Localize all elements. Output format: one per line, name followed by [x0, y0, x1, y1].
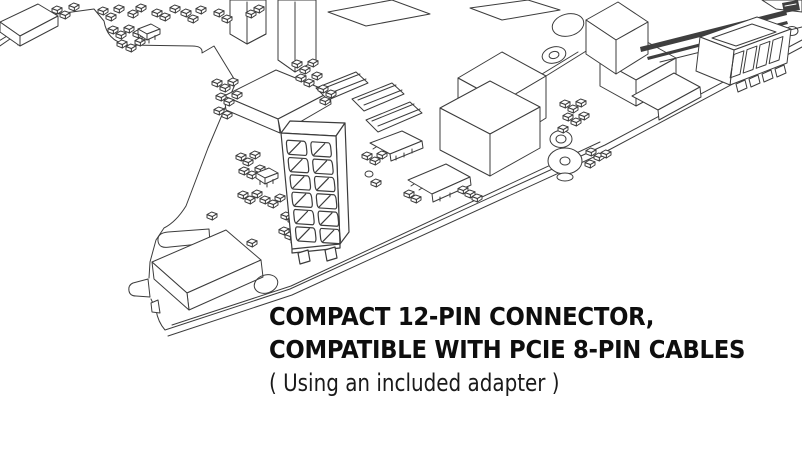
- caption-heading-line2: COMPATIBLE WITH PCIE 8-PIN CABLES: [269, 333, 745, 366]
- caption-heading-line1: COMPACT 12-PIN CONNECTOR,: [269, 300, 745, 333]
- caption-block: COMPACT 12-PIN CONNECTOR, COMPATIBLE WIT…: [269, 300, 792, 399]
- caption-subheading: ( Using an included adapter ): [269, 368, 703, 399]
- slide: COMPACT 12-PIN CONNECTOR, COMPATIBLE WIT…: [0, 0, 802, 450]
- twelve-pin-connector: [281, 121, 349, 264]
